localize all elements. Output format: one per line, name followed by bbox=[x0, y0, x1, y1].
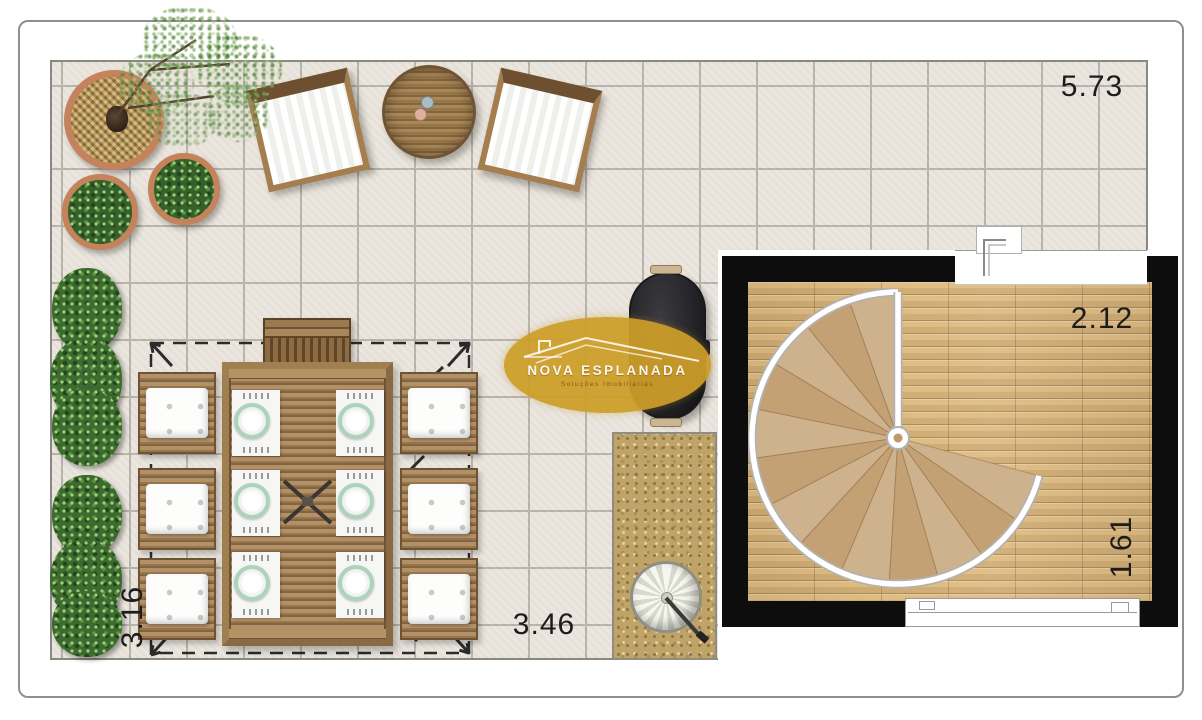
dimension-label-left: 3.16 bbox=[116, 577, 150, 657]
watermark-title: NOVA ESPLANADA bbox=[504, 363, 711, 378]
place-setting bbox=[232, 552, 280, 618]
chair-cushion bbox=[146, 484, 208, 534]
plate bbox=[338, 565, 374, 601]
plate bbox=[234, 565, 270, 601]
cup bbox=[421, 96, 434, 109]
window-track bbox=[908, 612, 1137, 613]
hedge-row-upper bbox=[52, 272, 120, 462]
dining-chair bbox=[138, 468, 216, 550]
hedge-bush bbox=[52, 591, 122, 657]
head-bench bbox=[263, 318, 351, 364]
grill-handle bbox=[650, 418, 682, 427]
dimension-label-stair-width: 2.12 bbox=[1062, 302, 1142, 336]
plate bbox=[234, 403, 270, 439]
bush-planter bbox=[148, 153, 220, 225]
table-endboard bbox=[229, 369, 386, 379]
cup bbox=[414, 108, 427, 121]
dining-chair bbox=[400, 468, 478, 550]
chair-cushion bbox=[408, 388, 470, 438]
dimension-label-stair-depth: 1.61 bbox=[1105, 507, 1139, 587]
dimension-label-top: 5.73 bbox=[1050, 70, 1134, 104]
table-endboard bbox=[229, 629, 386, 639]
round-side-table bbox=[382, 65, 476, 159]
window-frame-mark bbox=[919, 601, 935, 610]
plate bbox=[234, 483, 270, 519]
place-setting bbox=[336, 552, 384, 618]
place-setting bbox=[336, 390, 384, 456]
hedge-bush bbox=[52, 388, 122, 466]
place-setting bbox=[232, 470, 280, 536]
chair-cushion bbox=[146, 388, 208, 438]
place-setting bbox=[336, 470, 384, 536]
bush-planter bbox=[62, 174, 138, 250]
chair-cushion bbox=[408, 484, 470, 534]
hedge-row-lower bbox=[52, 477, 120, 658]
dining-chair bbox=[138, 372, 216, 454]
chair-cushion bbox=[408, 574, 470, 624]
tree-foliage bbox=[146, 92, 218, 148]
chair-cushion bbox=[146, 574, 208, 624]
bench-seat-slats bbox=[265, 338, 349, 362]
bench-backrest bbox=[265, 320, 349, 338]
place-setting bbox=[232, 390, 280, 456]
window-frame-mark bbox=[1111, 602, 1129, 613]
door-opening bbox=[955, 250, 1147, 285]
watermark-subtitle: Soluções Imobiliárias bbox=[504, 381, 711, 388]
dining-chair bbox=[400, 372, 478, 454]
floorplan-image: 5.73 2.12 1.61 3.46 3.16 NOVA ESPLANADA … bbox=[0, 0, 1202, 720]
agency-watermark: NOVA ESPLANADA Soluções Imobiliárias bbox=[504, 317, 711, 413]
plate bbox=[338, 483, 374, 519]
plate bbox=[338, 403, 374, 439]
door-jamb bbox=[976, 226, 1022, 254]
grill-handle bbox=[650, 265, 682, 274]
tree-trunk bbox=[106, 106, 128, 132]
parasol-top bbox=[630, 561, 702, 633]
dining-chair bbox=[400, 558, 478, 640]
dimension-label-bottom: 3.46 bbox=[502, 608, 586, 642]
sliding-window bbox=[905, 598, 1140, 627]
